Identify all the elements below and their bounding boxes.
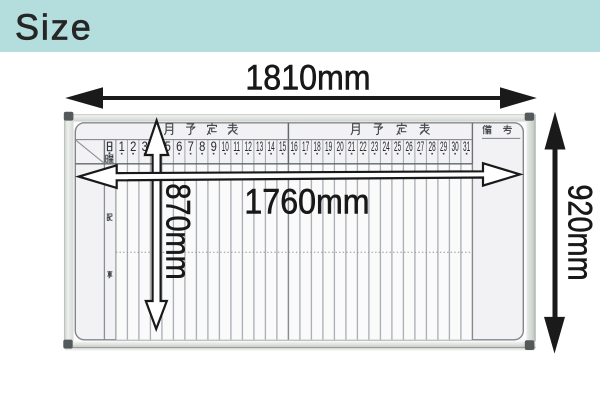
svg-text:9: 9 [211, 139, 217, 154]
svg-text:21: 21 [348, 139, 355, 154]
svg-text:22: 22 [360, 139, 367, 154]
svg-text:12: 12 [245, 139, 252, 154]
svg-text:28: 28 [429, 139, 436, 154]
svg-text:1810mm: 1810mm [245, 59, 370, 98]
svg-text:1: 1 [119, 139, 125, 154]
svg-text:920mm: 920mm [561, 184, 600, 280]
svg-text:30: 30 [452, 139, 459, 154]
svg-text:7: 7 [188, 139, 194, 154]
svg-text:13: 13 [256, 139, 263, 154]
svg-text:23: 23 [371, 139, 378, 154]
svg-text:Size: Size [15, 7, 93, 48]
svg-text:29: 29 [440, 139, 447, 154]
svg-text:6: 6 [176, 139, 182, 154]
svg-text:11: 11 [233, 139, 240, 154]
svg-text:19: 19 [325, 139, 332, 154]
svg-text:870mm: 870mm [159, 183, 198, 279]
svg-text:24: 24 [383, 139, 390, 154]
svg-text:16: 16 [291, 139, 298, 154]
svg-text:10: 10 [222, 139, 229, 154]
svg-text:1760mm: 1760mm [244, 183, 369, 222]
svg-text:27: 27 [417, 139, 424, 154]
svg-text:15: 15 [279, 139, 286, 154]
svg-text:25: 25 [394, 139, 401, 154]
svg-text:26: 26 [406, 139, 413, 154]
svg-text:20: 20 [337, 139, 344, 154]
svg-text:31: 31 [463, 139, 470, 154]
svg-text:18: 18 [314, 139, 321, 154]
svg-text:2: 2 [130, 139, 136, 154]
svg-text:17: 17 [302, 139, 309, 154]
svg-text:14: 14 [268, 139, 275, 154]
svg-text:8: 8 [199, 139, 205, 154]
